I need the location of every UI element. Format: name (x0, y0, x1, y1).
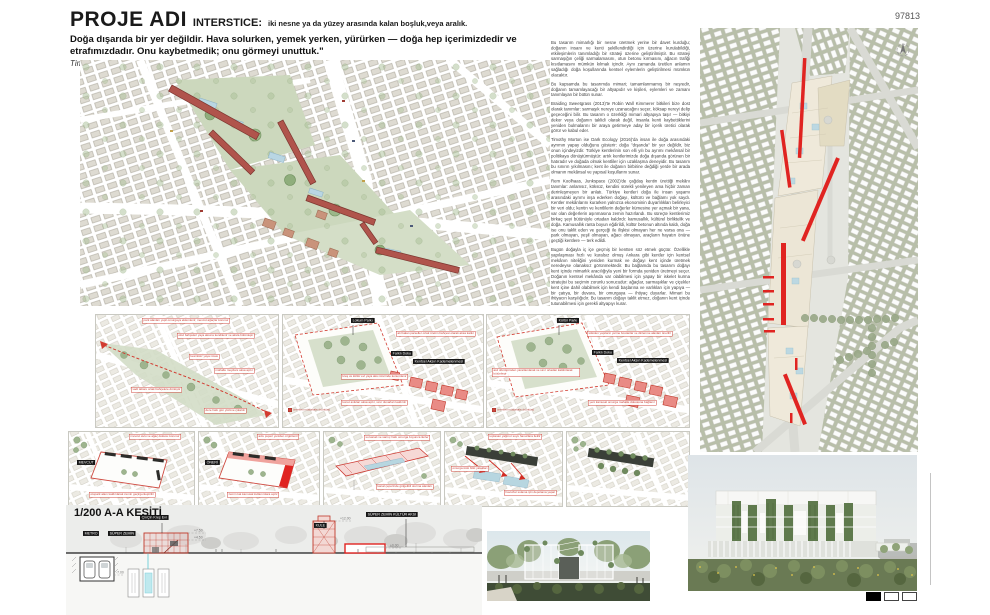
panel-tag: Kültür Parkı (557, 318, 579, 323)
level-label: -7.00 (116, 571, 124, 575)
panel-tag: ÖNERİ (205, 460, 220, 465)
annotation: sökülen yapıların yerine bostanlar ve di… (587, 331, 672, 336)
annotation: su kanalı ve sarnıç hattı omurga boyunca… (364, 435, 430, 440)
panel-inner-tag: Kentsel Aksın Kademelenmesi (617, 358, 669, 363)
diagram-row2-panel-5 (566, 431, 690, 507)
panel-inner-tag: Farklı Doku (592, 350, 614, 355)
essay-column: Bu tasarım mimarlığı bir nesne üretmek y… (551, 40, 690, 310)
term-definition: iki nesne ya da yüzey arasında kalan boş… (268, 19, 467, 28)
axonometric-site-drawing (80, 60, 550, 306)
essay-paragraph: Timothy Morton ise Dark Ecology (2016)'d… (551, 137, 690, 175)
diagram-row2-panel-1: MEVCUT mevcut avlu ve ağaç dokusu korunu… (68, 431, 195, 507)
competition-board: PROJE ADI INTERSTICE: iki nesne ya da yü… (0, 0, 990, 615)
annotation: otopark alanı kaldırılarak zemin geçirge… (89, 492, 155, 497)
annotation: yeni kamusal omurga mahalle dokusuna bağ… (588, 400, 656, 405)
diagram-row1-panel-1: park alanları yeşil omurgaya eklemlenir,… (95, 314, 279, 428)
section-drawing: 1/200 A-A KESİTİ (66, 505, 482, 615)
panel-legend: önerilen müdahale örüntüsü (492, 408, 534, 412)
annotation: mevcut avlu ve ağaç dokusu korunur (129, 434, 181, 439)
annotation: vadi tabanı ortak bahçelere dönüşür (131, 387, 182, 392)
panel-tag: Lokum Parkı (351, 318, 374, 323)
essay-paragraph: Rem Koolhaas, Junkspace (2002)'de çağdaş… (551, 179, 690, 244)
annotation: kanal çeperinde gölgelikli oturma alanla… (376, 484, 433, 489)
diagram-row2-panel-2: ÖNERİ avlu çeperi yeniden örgütlenir zem… (198, 431, 320, 507)
board-number: 97813 (895, 11, 920, 21)
render-building (688, 455, 917, 591)
panel-inner-tag: Farklı Doku (391, 351, 413, 356)
essay-paragraph: Bu tasarım mimarlığı bir nesne üretmek y… (551, 40, 690, 78)
annotation: dere hattı gün yüzüne çıkarılır (204, 408, 247, 413)
annotation: konut avluları aksa açılır, sınır duvarl… (341, 400, 408, 405)
annotation: atıl kalan parseller ortak üretim bahçes… (396, 331, 476, 336)
diagram-row1-panel-2: Lokum Parkı Farklı Doku Kentsel Aksın Ka… (282, 314, 484, 428)
level-label: ±0.00 (390, 544, 399, 548)
panel-legend: önerilen müdahale örüntüsü (288, 408, 330, 412)
page-title: PROJE ADI (70, 8, 187, 32)
level-label: +4.50 (194, 536, 203, 540)
section-tag-super-zemin: SÜPER ZEMİN (108, 531, 136, 536)
board-page-indicator (866, 592, 917, 601)
annotation: toplanan yağmur suyu havuzlara iletilir (488, 434, 542, 439)
level-label: +7.50 (194, 529, 203, 533)
panel-inner-tag: Kentsel Aksın Kademelenmesi (413, 359, 465, 364)
legend-swatch (288, 408, 292, 412)
annotation: mahalle meydanı aksa açılır (214, 368, 254, 373)
page-indicator-current (866, 592, 881, 601)
panel-tag: MEVCUT (77, 460, 95, 465)
diagram-row1-panel-3: Kültür Parkı Farklı Doku Kentsel Aksın K… (486, 314, 690, 428)
legend-label: önerilen müdahale örüntüsü (497, 409, 534, 412)
annotation: okul bahçeleri yaya aksına kendilenir ve… (177, 333, 255, 338)
annotation: kreş ve kültür evi yaya aksı üzerinde ko… (341, 374, 408, 379)
section-title: 1/200 A-A KESİTİ (74, 507, 162, 519)
essay-paragraph: Bu kapsamda bu tasarımda mimari; tamamla… (551, 81, 690, 97)
diagram-row2-panel-4: toplanan yağmur suyu havuzlara iletilir … (444, 431, 563, 507)
annotation: avlu çeperi yeniden örgütlenir (257, 434, 299, 439)
page-indicator (902, 592, 917, 601)
diagram-row2-panel-3: su kanalı ve sarnıç hattı omurga boyunca… (323, 431, 441, 507)
right-edge-rule (930, 473, 931, 585)
essay-paragraph: Bugün doğayla iç içe geçmiş bir kentten … (551, 247, 690, 307)
annotation: omurga üstü bitki yatakları (451, 466, 489, 471)
annotation: asıl dönüşümden yararlanılarak ve sınır … (492, 368, 580, 377)
term-label: INTERSTICE: (193, 17, 262, 29)
section-tag-metro: METRO (83, 531, 99, 536)
page-indicator (884, 592, 899, 601)
section-tag-kule: KULE (314, 523, 327, 528)
quote-text: Doğa dışarıda bir yer değildir. Hava sol… (70, 34, 548, 58)
legend-swatch (492, 408, 496, 412)
legend-label: önerilen müdahale örüntüsü (293, 409, 330, 412)
level-label: +12.00 (340, 517, 351, 521)
annotation: park alanları yeşil omurgaya eklemlenir,… (142, 318, 230, 323)
annotation: zemin kat kamusal kullanımlara açılır (227, 492, 279, 497)
section-tag-kultur: SÜPER ZEMİN KÜLTÜR AKSI (366, 512, 418, 517)
site-plan-map (700, 28, 918, 452)
annotation: kesintisiz yaya rotası (189, 354, 220, 359)
render-pergola (487, 531, 650, 601)
header: PROJE ADI INTERSTICE: iki nesne ya da yü… (70, 8, 570, 68)
essay-paragraph: Braiding Sweetgrass (2013)'te Robin Wall… (551, 101, 690, 133)
annotation: havuzlar sulama için depolama yapar (504, 490, 557, 495)
